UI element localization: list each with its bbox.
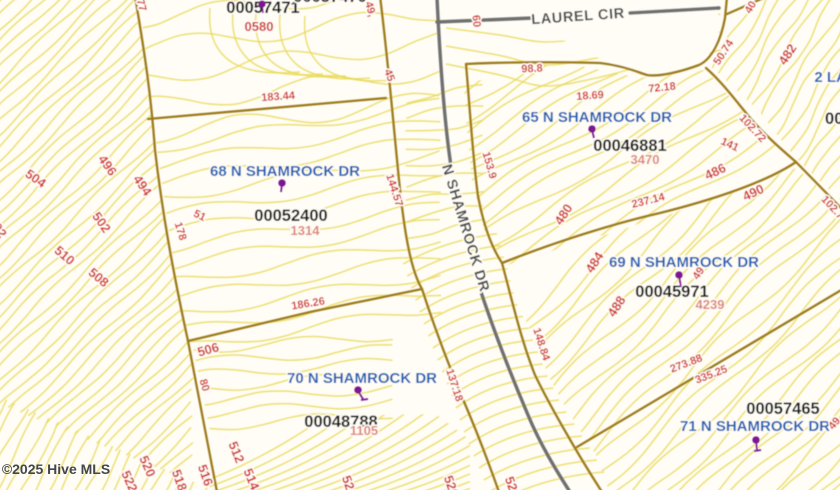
svg-text:©2025 Hive MLS: ©2025 Hive MLS	[2, 461, 110, 477]
svg-text:71 N SHAMROCK DR: 71 N SHAMROCK DR	[680, 418, 830, 435]
svg-text:1314: 1314	[291, 223, 321, 238]
svg-text:69 N SHAMROCK DR: 69 N SHAMROCK DR	[609, 254, 759, 271]
svg-text:70 N SHAMROCK DR: 70 N SHAMROCK DR	[287, 370, 437, 387]
svg-text:00086: 00086	[825, 110, 840, 128]
svg-text:183.44: 183.44	[261, 90, 296, 104]
svg-text:00057465: 00057465	[746, 400, 819, 418]
svg-text:65 N SHAMROCK DR: 65 N SHAMROCK DR	[522, 109, 672, 126]
svg-text:0580: 0580	[245, 19, 274, 34]
svg-text:1105: 1105	[350, 423, 378, 438]
svg-text:60: 60	[469, 14, 482, 27]
svg-text:68 N SHAMROCK DR: 68 N SHAMROCK DR	[210, 163, 360, 180]
svg-text:2 LAU: 2 LAU	[814, 69, 840, 86]
svg-text:3470: 3470	[631, 152, 660, 167]
svg-text:4239: 4239	[696, 297, 725, 312]
svg-text:98.8: 98.8	[521, 62, 543, 75]
svg-text:00057470: 00057470	[293, 0, 366, 6]
svg-text:18.69: 18.69	[576, 89, 604, 103]
